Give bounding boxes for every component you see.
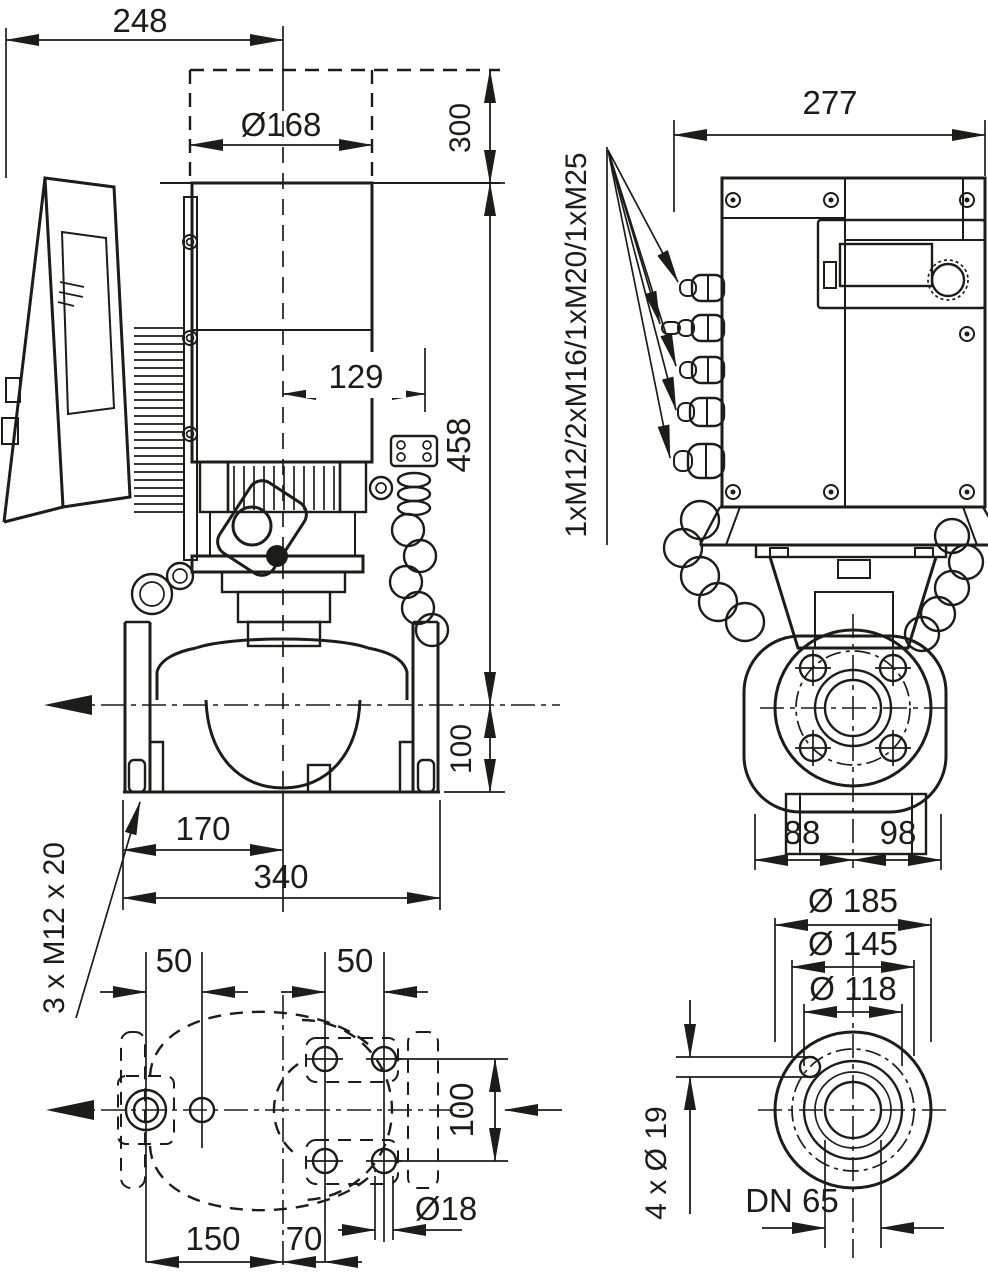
label-text-bolt-holes: 4 x Ø 19 <box>640 1106 673 1219</box>
electronic-housing <box>722 178 985 507</box>
dim-base-height: 100 <box>444 705 505 792</box>
drawing-svg: 248 Ø168 300 458 100 129 <box>0 0 988 1280</box>
pump-dimensional-drawing: 248 Ø168 300 458 100 129 <box>0 0 988 1280</box>
display-panel <box>818 220 985 308</box>
dim-text-100-side: 100 <box>445 724 478 774</box>
dim-text-248: 248 <box>112 2 167 39</box>
dim-text-150: 150 <box>185 1220 240 1257</box>
dim-text-145: Ø 145 <box>808 925 898 962</box>
control-module <box>2 178 130 522</box>
label-text-dn: DN 65 <box>745 1182 839 1219</box>
control-knob <box>932 264 964 296</box>
dim-text-98: 98 <box>880 814 917 851</box>
coiled-cable-left <box>664 501 764 641</box>
dim-text-277: 277 <box>802 84 857 121</box>
eyelet <box>370 477 392 499</box>
front-view: 277 <box>560 84 988 870</box>
front-lantern <box>700 507 988 648</box>
dim-text-129: 129 <box>328 358 383 395</box>
foot-slot <box>129 760 145 792</box>
dim-overall-width-side: 248 <box>6 2 283 178</box>
dim-text-50-right: 50 <box>337 942 374 979</box>
dim-text-70: 70 <box>286 1220 323 1257</box>
dim-text-88: 88 <box>784 814 821 851</box>
side-view: 248 Ø168 300 458 100 129 <box>2 2 560 1018</box>
dim-hole-rows: 100 <box>398 1059 508 1161</box>
cable-glands <box>662 275 724 478</box>
flange-view: Ø 185 Ø 145 Ø 118 4 x Ø 19 <box>640 882 948 1258</box>
dim-text-motor-dia: Ø168 <box>241 106 322 143</box>
dim-hole-offsets: 150 70 <box>146 1220 362 1262</box>
dim-text-300: 300 <box>444 103 477 153</box>
dim-text-340: 340 <box>253 858 308 895</box>
plan-view: 50 50 100 Ø18 150 70 <box>46 942 562 1268</box>
label-text-glands: 1xM12/2xM16/1xM20/1xM25 <box>560 152 593 537</box>
flow-arrow-side <box>44 695 92 715</box>
dim-foot-positions: 170 340 <box>123 800 440 910</box>
dim-text-118: Ø 118 <box>809 970 896 1007</box>
flange-bolt-hole <box>800 1057 820 1077</box>
gland-leaders: 1xM12/2xM16/1xM20/1xM25 <box>560 147 678 545</box>
coiled-cable-right <box>905 519 983 651</box>
dim-text-50-left: 50 <box>156 942 193 979</box>
dim-module-offset: 129 <box>283 348 425 412</box>
module-label-lines <box>58 282 84 306</box>
label-text-foot-thread: 3 x M12 x 20 <box>38 842 71 1014</box>
dim-text-458: 458 <box>440 417 477 472</box>
dim-text-170: 170 <box>175 810 230 847</box>
dim-text-hole-dia: Ø18 <box>415 1190 477 1227</box>
label-foot-thread: 3 x M12 x 20 <box>38 802 140 1018</box>
module-display <box>62 232 114 414</box>
flow-arrow-plan <box>46 1100 94 1120</box>
dim-motor-diameter: Ø168 <box>190 106 372 145</box>
cooling-fins <box>134 328 184 512</box>
dim-removal-clearance: 300 <box>378 70 505 183</box>
dim-front-feet: 88 98 <box>755 814 941 870</box>
dim-hole-pitches: 50 50 <box>100 942 428 992</box>
foot-slot <box>418 760 434 792</box>
housing-screws <box>726 193 974 499</box>
dim-text-100-plan: 100 <box>443 1082 480 1137</box>
dim-text-185: Ø 185 <box>808 882 898 919</box>
